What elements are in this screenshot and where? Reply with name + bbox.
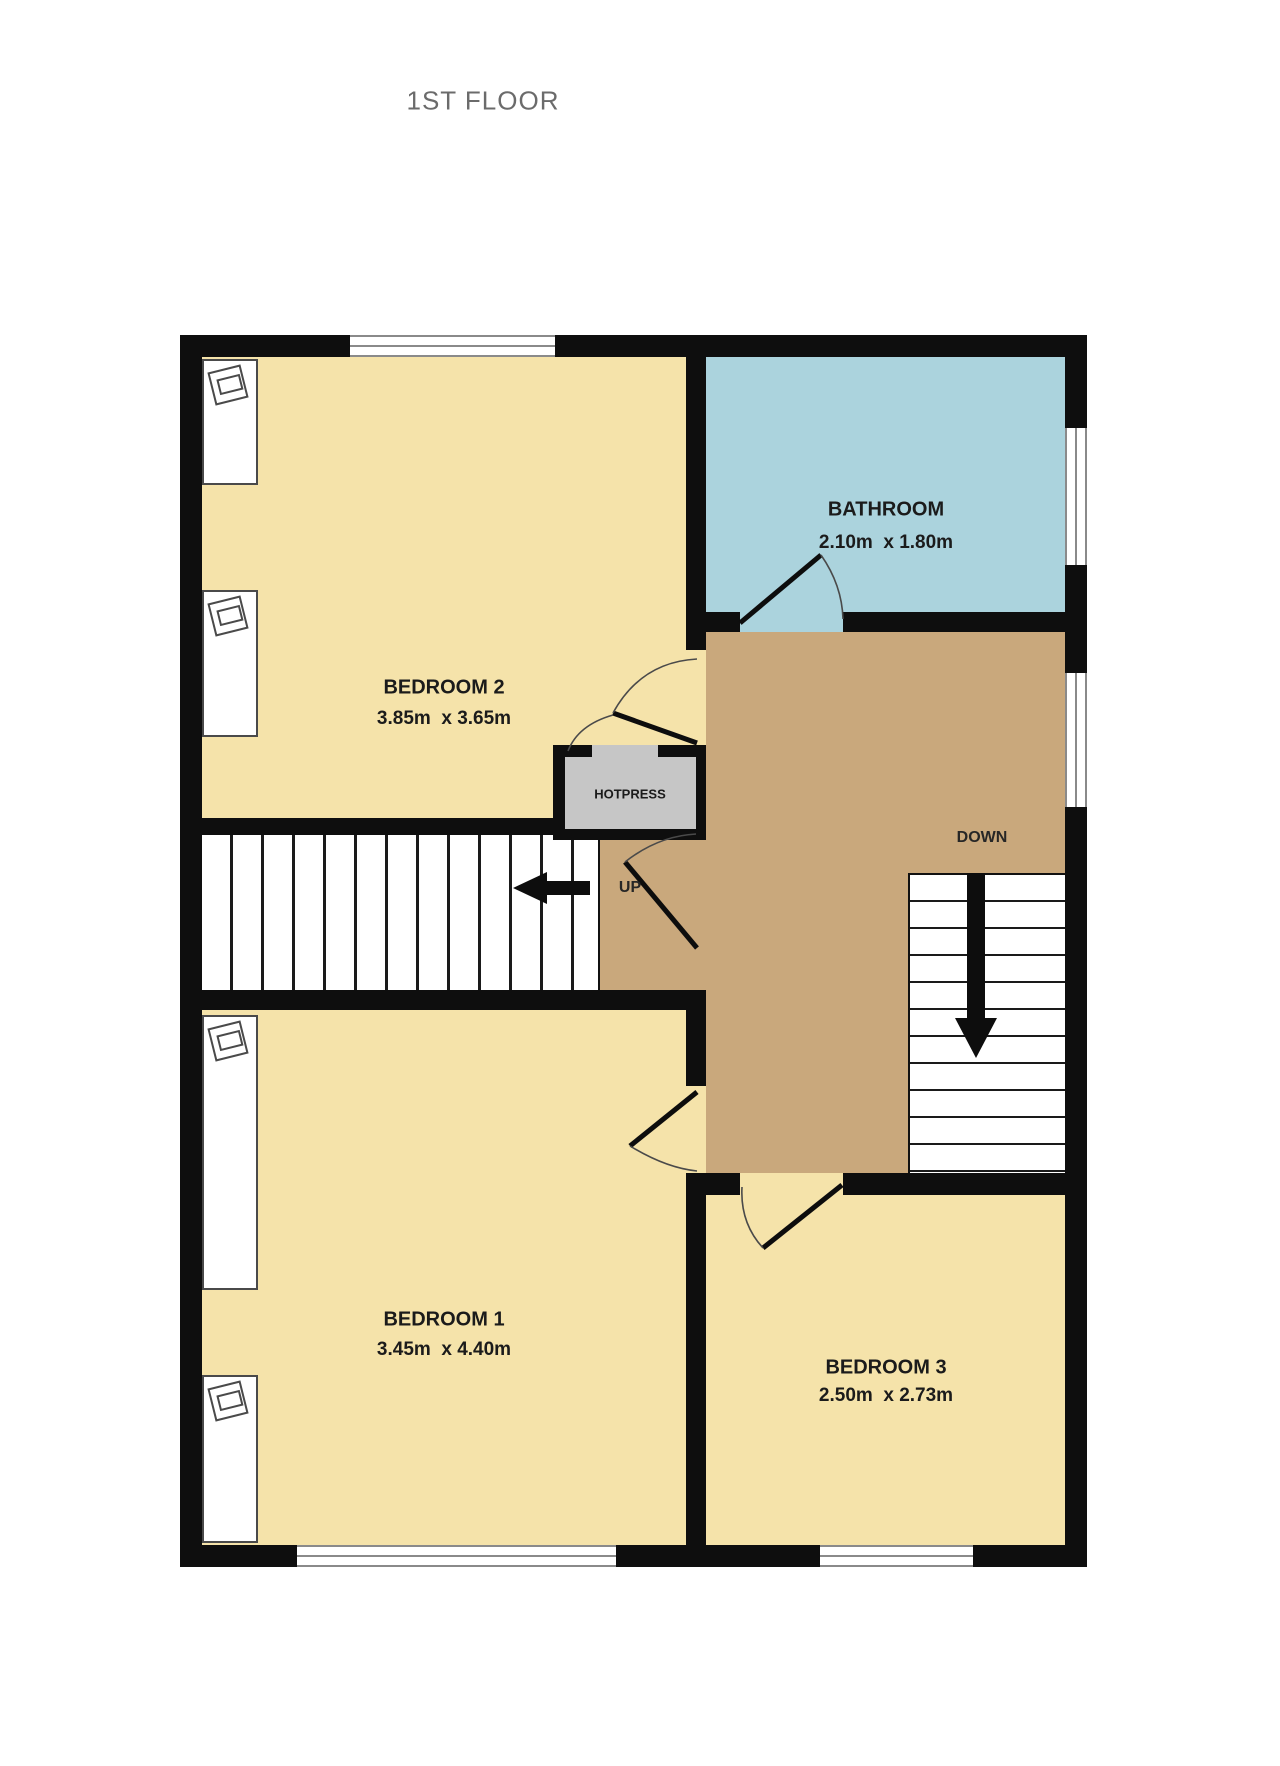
bed-icon (202, 1015, 258, 1290)
window (820, 1545, 973, 1567)
stairs-up-flight (202, 835, 600, 990)
hotpress-opening (592, 745, 658, 759)
bedroom2-dimensions: 3.85m x 3.65m (377, 708, 511, 730)
wall (843, 1173, 1065, 1195)
bathroom-label: BATHROOM (828, 499, 944, 522)
bedroom3-dimensions: 2.50m x 2.73m (819, 1385, 953, 1407)
floor-plan-page: 1ST FLOOR (0, 0, 1280, 1766)
wall (202, 818, 553, 835)
window (1065, 428, 1087, 565)
bedroom2-label: BEDROOM 2 (383, 677, 504, 700)
hallway-floor (706, 873, 908, 1173)
stairs-up-label: UP (619, 879, 641, 897)
floor-plan: BEDROOM 2 3.85m x 3.65m BATHROOM 2.10m x… (180, 335, 1087, 1567)
bathroom-door-opening (740, 612, 843, 632)
bedroom1-dimensions: 3.45m x 4.40m (377, 1339, 511, 1361)
pillow-icon (207, 364, 248, 405)
bedroom1-floor (202, 1010, 686, 1545)
bedroom1-door-opening (686, 1086, 706, 1173)
pillow-icon (207, 1020, 248, 1061)
wall (686, 1173, 706, 1545)
page-title: 1ST FLOOR (406, 86, 559, 117)
wall (843, 612, 1065, 632)
wall (180, 335, 202, 1567)
pillow-icon (207, 1380, 248, 1421)
bedroom3-label: BEDROOM 3 (825, 1357, 946, 1380)
bedroom3-door-opening (740, 1173, 843, 1195)
bathroom-floor (706, 357, 1065, 612)
bathroom-dimensions: 2.10m x 1.80m (819, 532, 953, 554)
stairs-down-flight (908, 873, 1065, 1173)
wall (686, 357, 706, 650)
bed-icon (202, 1375, 258, 1543)
window (350, 335, 555, 357)
wall (706, 612, 740, 632)
window (1065, 673, 1087, 807)
hallway-floor (706, 632, 1065, 873)
pillow-icon (207, 595, 248, 636)
window (297, 1545, 616, 1567)
wall (202, 990, 706, 1010)
wall (686, 1173, 740, 1195)
wall (180, 335, 1087, 357)
bed-icon (202, 359, 258, 485)
bedroom1-label: BEDROOM 1 (383, 1309, 504, 1332)
landing-floor (600, 835, 706, 990)
stairs-down-label: DOWN (957, 829, 1008, 847)
hotpress-label: HOTPRESS (594, 787, 666, 802)
bedroom2-door-opening (686, 650, 706, 745)
bed-icon (202, 590, 258, 737)
